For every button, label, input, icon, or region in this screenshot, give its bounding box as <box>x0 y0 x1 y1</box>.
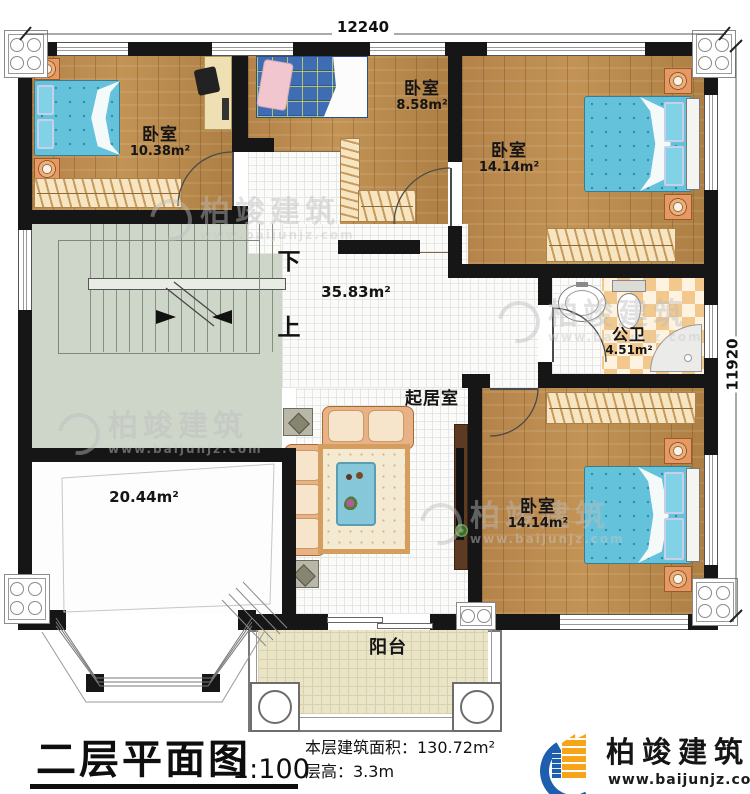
nightstand <box>664 566 692 592</box>
coffee-table <box>336 462 376 526</box>
window <box>704 455 718 565</box>
window <box>212 42 293 56</box>
nightstand <box>34 158 60 180</box>
room-label-bedroom-top-middle: 卧室 8.58m² <box>380 80 464 113</box>
bay-window-post <box>238 610 256 630</box>
window <box>18 230 32 310</box>
dimension-top: 12240 <box>332 18 394 35</box>
bed-headboard <box>686 468 700 562</box>
bay-window-outer-line <box>42 632 264 702</box>
brand-logo-building <box>562 734 586 778</box>
room-label-bathroom: 公卫 4.51m² <box>590 326 668 357</box>
wardrobe <box>546 392 696 424</box>
brand-logo-mark <box>540 734 598 786</box>
room-label-balcony: 阳台 <box>352 638 424 658</box>
nightstand <box>664 68 692 94</box>
wardrobe <box>34 178 182 208</box>
floor-plan-sheet: 卧室 10.38m² 卧室 8.58m² 卧室 14.14m² 卧室 14.14… <box>0 0 750 794</box>
sliding-door <box>327 617 383 623</box>
bathroom-corridor-floor <box>462 278 538 388</box>
floor-info: 本层建筑面积：130.72m² 层高：3.3m <box>305 736 565 784</box>
corner-post <box>692 30 736 78</box>
pillow <box>37 119 54 149</box>
sheet-scale: 1:100 <box>232 754 310 785</box>
shower-drain <box>684 354 692 362</box>
table-items <box>346 474 352 480</box>
corner-post <box>4 30 48 78</box>
bay-window-post <box>86 674 104 692</box>
sink-basin <box>565 290 599 316</box>
room-name: 卧室 <box>470 142 548 161</box>
bed-headboard <box>686 98 700 190</box>
room-area: 4.51m² <box>590 344 668 357</box>
wall-segment <box>232 42 248 152</box>
room-label-bedroom-top-left: 卧室 10.38m² <box>112 126 208 159</box>
brand-website: www.baijunjz.com <box>608 772 750 788</box>
room-area: 8.58m² <box>380 99 464 113</box>
sheet-title: 二层平面图 <box>36 740 251 780</box>
wall-segment <box>448 264 718 278</box>
room-name: 起居室 <box>396 390 468 409</box>
wall-segment <box>468 388 482 614</box>
window <box>704 305 718 358</box>
dimension-right: 11920 <box>724 337 741 393</box>
wall-segment <box>538 278 552 305</box>
wall-segment <box>248 614 328 630</box>
toilet-tank <box>612 280 646 292</box>
room-name: 卧室 <box>498 498 578 517</box>
nightstand <box>664 194 692 220</box>
wardrobe <box>358 190 416 222</box>
room-area: 10.38m² <box>112 145 208 159</box>
floor-transition-line <box>274 151 340 152</box>
stairs-down-label: 下 <box>274 242 304 276</box>
bay-window-post <box>48 610 66 630</box>
stair-outline <box>58 240 260 354</box>
plant <box>455 524 468 537</box>
pillow <box>664 146 684 186</box>
window <box>57 42 128 56</box>
room-name: 卧室 <box>112 126 208 145</box>
bay-window-glazing <box>56 622 252 682</box>
bay-window-post <box>202 674 220 692</box>
wall-segment <box>538 374 718 388</box>
room-name: 卧室 <box>380 80 464 99</box>
wall-segment <box>18 210 232 224</box>
sofa-cushion <box>368 410 404 442</box>
wall-segment <box>18 42 32 630</box>
room-name: 公卫 <box>590 326 668 344</box>
sliding-door <box>377 623 433 629</box>
wall-segment <box>232 206 248 224</box>
hall-area-label: 35.83m² <box>318 283 394 301</box>
faucet <box>576 282 588 287</box>
room-label-living-room: 起居室 <box>396 390 468 409</box>
balcony-column <box>452 682 502 732</box>
corner-post <box>4 574 50 624</box>
wall-segment <box>338 240 420 254</box>
pillow <box>664 102 684 142</box>
wall-segment <box>282 462 296 614</box>
desk-items <box>222 98 229 120</box>
window <box>370 42 445 56</box>
wall-segment <box>18 448 296 462</box>
window <box>487 42 645 56</box>
table-items <box>356 472 363 479</box>
balcony-column <box>250 682 300 732</box>
bay-window-glazing <box>56 618 252 678</box>
window <box>560 614 688 630</box>
title-underline <box>30 784 298 789</box>
room-area: 14.14m² <box>498 517 578 531</box>
room-name: 阳台 <box>352 638 424 658</box>
spare-room-floor <box>32 462 282 614</box>
wall-segment <box>538 362 552 374</box>
room-label-bedroom-bottom-right: 卧室 14.14m² <box>498 498 578 531</box>
end-table <box>283 408 313 436</box>
brand-name: 柏竣建筑 <box>606 738 750 767</box>
corner-post <box>692 578 738 626</box>
wall-segment <box>462 374 490 388</box>
floor-height-text: 层高：3.3m <box>305 760 565 784</box>
room-label-bedroom-top-right: 卧室 14.14m² <box>470 142 548 175</box>
balcony-pier <box>456 602 496 630</box>
stairs-up-label: 上 <box>274 308 304 342</box>
sofa-cushion <box>328 410 364 442</box>
wardrobe <box>340 138 360 222</box>
pillow <box>664 472 684 514</box>
window <box>704 95 718 190</box>
floor-area-text: 本层建筑面积：130.72m² <box>305 736 565 760</box>
wardrobe <box>546 228 676 262</box>
wall-segment <box>248 138 274 152</box>
spare-room-area-label: 20.44m² <box>104 488 184 506</box>
room-area: 14.14m² <box>470 161 548 175</box>
table-flowers <box>344 496 362 514</box>
nightstand <box>664 438 692 464</box>
pillow <box>664 518 684 560</box>
brand-logo-building-accent <box>552 750 561 778</box>
pillow <box>37 85 54 115</box>
